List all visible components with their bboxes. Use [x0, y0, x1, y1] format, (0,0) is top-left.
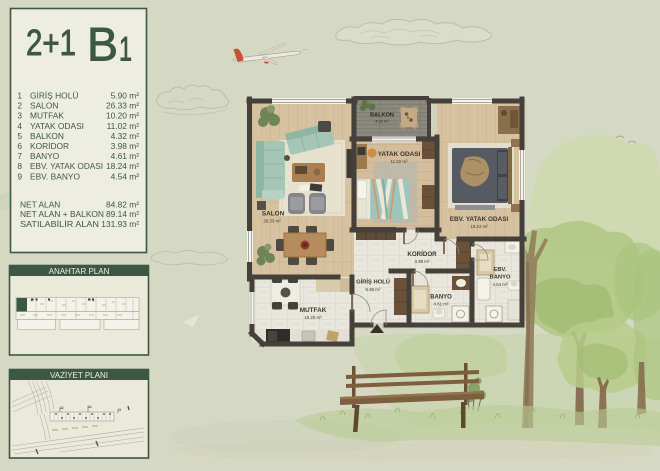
svg-text:NET ALAN: NET ALAN — [20, 200, 60, 210]
svg-text:YATAK ODASI: YATAK ODASI — [378, 151, 421, 158]
svg-text:84.82 m²: 84.82 m² — [106, 200, 139, 210]
svg-text:5.90 m²: 5.90 m² — [111, 91, 140, 101]
svg-text:YATAK ODASI: YATAK ODASI — [30, 121, 84, 131]
svg-text:131.93 m²: 131.93 m² — [101, 219, 139, 229]
svg-text:2: 2 — [17, 101, 22, 111]
svg-text:SATILABİLİR ALAN: SATILABİLİR ALAN — [20, 219, 99, 229]
svg-text:ANAHTAR PLAN: ANAHTAR PLAN — [49, 267, 110, 276]
svg-text:MUTFAK: MUTFAK — [300, 307, 327, 314]
svg-text:5.90 m²: 5.90 m² — [366, 287, 381, 292]
svg-text:4.32 m²: 4.32 m² — [375, 119, 389, 124]
svg-text:BANYO: BANYO — [430, 295, 452, 301]
svg-text:KORİDOR: KORİDOR — [30, 141, 69, 151]
svg-text:26.33 m²: 26.33 m² — [263, 219, 281, 224]
svg-text:18.24 m²: 18.24 m² — [470, 224, 488, 229]
svg-text:MUTFAK: MUTFAK — [30, 111, 64, 121]
svg-text:4.54 m²: 4.54 m² — [111, 171, 140, 181]
svg-text:BALKON: BALKON — [30, 131, 64, 141]
svg-text:4.61 m²: 4.61 m² — [111, 151, 140, 161]
svg-text:NET ALAN + BALKON: NET ALAN + BALKON — [20, 209, 104, 219]
svg-text:EBV. YATAK ODASI: EBV. YATAK ODASI — [30, 161, 103, 171]
svg-text:SALON: SALON — [262, 211, 285, 218]
svg-text:7: 7 — [17, 151, 22, 161]
svg-text:GİRİŞ HOLÜ: GİRİŞ HOLÜ — [356, 279, 390, 286]
svg-text:4: 4 — [17, 121, 22, 131]
svg-text:SALON: SALON — [30, 101, 58, 111]
svg-text:10.20 m²: 10.20 m² — [106, 111, 139, 121]
svg-text:3.98 m²: 3.98 m² — [111, 141, 140, 151]
svg-text:10.20 m²: 10.20 m² — [304, 315, 322, 320]
svg-text:8: 8 — [17, 161, 22, 171]
svg-text:4.54 m²: 4.54 m² — [493, 282, 508, 287]
svg-text:9: 9 — [17, 171, 22, 181]
svg-text:26.33 m²: 26.33 m² — [106, 101, 139, 111]
svg-text:3.98 m²: 3.98 m² — [415, 259, 430, 264]
svg-text:3: 3 — [17, 111, 22, 121]
svg-text:1: 1 — [17, 91, 22, 101]
svg-text:5: 5 — [17, 131, 22, 141]
svg-text:6: 6 — [17, 141, 22, 151]
svg-text:KORİDOR: KORİDOR — [407, 251, 437, 258]
svg-text:4.61 m²: 4.61 m² — [434, 302, 449, 307]
svg-text:EBV. BANYO: EBV. BANYO — [30, 171, 80, 181]
svg-text:1: 1 — [119, 31, 132, 69]
svg-text:VAZİYET PLANI: VAZİYET PLANI — [50, 371, 108, 380]
svg-text:4.32 m²: 4.32 m² — [111, 131, 140, 141]
svg-text:2+1: 2+1 — [26, 22, 76, 63]
svg-text:18.24 m²: 18.24 m² — [106, 161, 139, 171]
svg-text:11.02 m²: 11.02 m² — [390, 159, 408, 164]
svg-text:EBV. YATAK ODASI: EBV. YATAK ODASI — [450, 216, 509, 223]
svg-text:BANYO: BANYO — [490, 275, 511, 281]
svg-text:GİRİŞ HOLÜ: GİRİŞ HOLÜ — [30, 91, 78, 101]
svg-text:BANYO: BANYO — [30, 151, 60, 161]
svg-text:EBV.: EBV. — [494, 267, 507, 273]
svg-text:11.02 m²: 11.02 m² — [107, 121, 140, 131]
svg-text:89.14 m²: 89.14 m² — [106, 209, 139, 219]
svg-text:B: B — [87, 18, 118, 71]
